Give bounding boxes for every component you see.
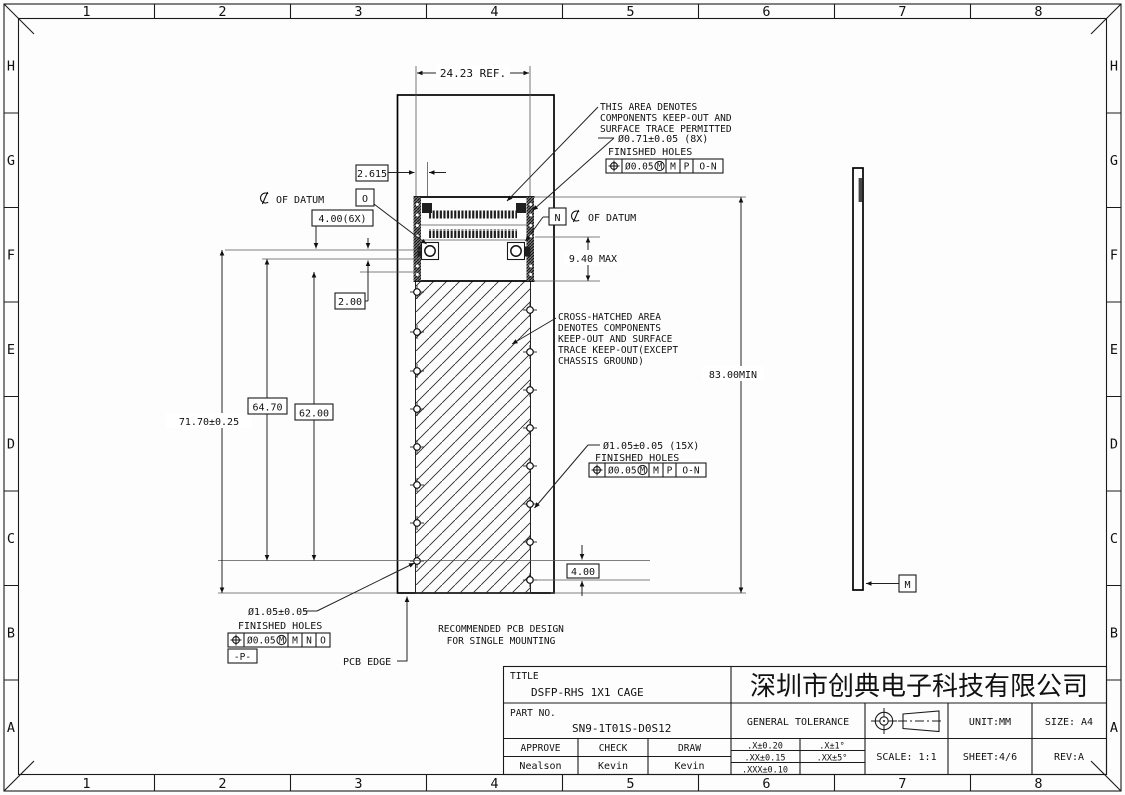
part-number: SN9-1T01S-D0S12 bbox=[572, 722, 671, 735]
fcf-datum: M bbox=[653, 466, 659, 477]
pin-row-1 bbox=[429, 210, 517, 219]
note-line: CROSS-HATCHED AREA bbox=[558, 312, 661, 323]
fcf-datum: M bbox=[670, 162, 676, 173]
col-label: 8 bbox=[1034, 4, 1042, 20]
tolerance-value: .XX±0.15 bbox=[745, 754, 786, 764]
fcf-datum: M bbox=[292, 636, 298, 647]
row-label: G bbox=[7, 153, 15, 169]
checker-name: Kevin bbox=[598, 761, 628, 772]
part-no-label: PART NO. bbox=[510, 708, 556, 719]
col-label: 4 bbox=[490, 4, 498, 20]
row-label: G bbox=[1110, 153, 1118, 169]
centerline-icon bbox=[260, 192, 268, 204]
datum-hole-n bbox=[511, 246, 521, 256]
hole-spec: Ø1.05±0.05 (15X) bbox=[603, 440, 699, 452]
crosshatch-keepout-area bbox=[416, 281, 531, 593]
datum-n-callout: N OF DATUM bbox=[526, 208, 637, 241]
dim-940: 9.40 MAX bbox=[564, 237, 622, 281]
row-label: F bbox=[1110, 248, 1118, 264]
row-label: D bbox=[7, 437, 15, 453]
pcb-top-view bbox=[398, 95, 555, 593]
col-label: 6 bbox=[762, 776, 770, 792]
general-tolerance-label: GENERAL TOLERANCE bbox=[747, 717, 849, 728]
dim-2615: 2.615 bbox=[356, 165, 446, 181]
datum-letter: N bbox=[554, 213, 560, 224]
note-line: TRACE KEEP-OUT(EXCEPT bbox=[558, 345, 678, 356]
dim-text: 4.00 bbox=[571, 567, 595, 578]
col-label: 5 bbox=[626, 776, 634, 792]
angle-tolerance-value: .X±1° bbox=[819, 742, 845, 752]
scale-value: SCALE: 1:1 bbox=[876, 752, 936, 763]
col-label: 3 bbox=[354, 4, 362, 20]
dim-text: 83.00MIN bbox=[709, 370, 757, 381]
fcf-datum: P bbox=[684, 162, 690, 173]
feature-control-frame: Ø0.05 M M P O-N bbox=[589, 463, 706, 477]
holes15-callout: Ø1.05±0.05 (15X) FINISHED HOLES Ø0.05 M … bbox=[535, 440, 707, 508]
title-block: TITLE DSFP-RHS 1X1 CAGE PART NO. SN9-1T0… bbox=[504, 667, 1107, 776]
fcf-datum: O-N bbox=[682, 466, 699, 477]
datum-letter: O bbox=[362, 194, 368, 205]
dim-8300: 83.00MIN bbox=[702, 197, 764, 593]
fcf-datum: O-N bbox=[699, 162, 716, 173]
row-label: D bbox=[1110, 437, 1118, 453]
fcf-datum: P bbox=[667, 466, 673, 477]
col-label: 4 bbox=[490, 776, 498, 792]
side-view-outline bbox=[853, 168, 863, 590]
col-label: 2 bbox=[218, 4, 226, 20]
datum-p-callout: Ø1.05±0.05 FINISHED HOLES Ø0.05 M M N O … bbox=[228, 563, 415, 663]
dim-6200: 62.00 bbox=[295, 272, 333, 561]
draw-label: DRAW bbox=[678, 743, 701, 754]
row-label: E bbox=[1110, 342, 1118, 358]
dim-text: 71.70±0.25 bbox=[179, 417, 239, 428]
dim-text: 4.00(6X) bbox=[318, 214, 366, 225]
datum-flag: -P- bbox=[234, 652, 251, 663]
check-label: CHECK bbox=[599, 743, 628, 754]
pin-row-2 bbox=[429, 229, 517, 238]
dim-text: 64.70 bbox=[252, 403, 282, 414]
pcb-side-view: M bbox=[853, 168, 916, 592]
note-line: KEEP-OUT AND SURFACE bbox=[558, 334, 673, 345]
row-label: H bbox=[7, 59, 15, 75]
dim-text: 62.00 bbox=[299, 409, 329, 420]
dim-400: 4.00 bbox=[567, 545, 599, 596]
angle-tolerance-value: .XX±5° bbox=[817, 754, 848, 764]
pcb-edge-label: PCB EDGE bbox=[343, 657, 391, 668]
tolerance-value: .XXX±0.10 bbox=[742, 766, 788, 776]
row-label: B bbox=[7, 626, 15, 642]
tolerance-value: .X±0.20 bbox=[747, 742, 783, 752]
side-view-pad bbox=[859, 178, 863, 202]
row-label: B bbox=[1110, 626, 1118, 642]
fcf-datum: O bbox=[320, 636, 326, 647]
corner-pad bbox=[516, 203, 526, 213]
approve-label: APPROVE bbox=[520, 743, 560, 754]
fcf-tolerance: Ø0.05 bbox=[625, 162, 654, 173]
dim-text: 24.23 REF. bbox=[440, 67, 506, 80]
dim-7170: 71.70±0.25 bbox=[166, 250, 252, 593]
size-value: SIZE: A4 bbox=[1045, 717, 1093, 728]
row-label: A bbox=[7, 720, 15, 736]
dim-400-6x: 4.00(6X) bbox=[312, 210, 373, 249]
sheet-value: SHEET:4/6 bbox=[963, 752, 1017, 763]
dim-text: 2.615 bbox=[357, 169, 387, 180]
drafter-name: Kevin bbox=[674, 761, 704, 772]
col-label: 1 bbox=[82, 776, 90, 792]
approver-name: Nealson bbox=[519, 761, 561, 772]
note-line: THIS AREA DENOTES bbox=[600, 102, 698, 113]
dim-6470: 64.70 bbox=[248, 259, 287, 561]
col-label: 7 bbox=[898, 776, 906, 792]
fcf-datum: N bbox=[306, 636, 312, 647]
note-line: RECOMMENDED PCB DESIGN bbox=[438, 624, 564, 635]
finished-holes-label: FINISHED HOLES bbox=[238, 621, 322, 632]
dim-text: 9.40 MAX bbox=[569, 254, 617, 265]
company-name: 深圳市创典电子科技有限公司 bbox=[750, 672, 1088, 702]
finished-holes-label: FINISHED HOLES bbox=[595, 453, 679, 464]
fcf-tolerance: Ø0.05 bbox=[608, 466, 637, 477]
col-label: 6 bbox=[762, 4, 770, 20]
rev-value: REV:A bbox=[1054, 752, 1084, 763]
crosshatch-note: CROSS-HATCHED AREA DENOTES COMPONENTS KE… bbox=[512, 312, 678, 367]
drawing-title: DSFP-RHS 1X1 CAGE bbox=[531, 686, 644, 699]
dim-text: 2.00 bbox=[338, 297, 362, 308]
feature-control-frame: Ø0.05 M M P O-N bbox=[606, 159, 723, 173]
col-label: 1 bbox=[82, 4, 90, 20]
note-line: CHASSIS GROUND) bbox=[558, 356, 644, 367]
hole-spec: Ø0.71±0.05 (8X) bbox=[618, 133, 708, 145]
finished-holes-label: FINISHED HOLES bbox=[608, 147, 692, 158]
row-label: F bbox=[7, 248, 15, 264]
hole-spec: Ø1.05±0.05 bbox=[248, 606, 308, 618]
col-label: 5 bbox=[626, 4, 634, 20]
note-line: DENOTES COMPONENTS bbox=[558, 323, 661, 334]
unit-value: UNIT:MM bbox=[969, 717, 1011, 728]
col-label: 2 bbox=[218, 776, 226, 792]
note-line: COMPONENTS KEEP-OUT AND bbox=[600, 113, 732, 124]
centerline-icon bbox=[571, 210, 579, 222]
feature-control-frame: Ø0.05 M M N O bbox=[228, 633, 330, 647]
pcb-edge-callout: PCB EDGE bbox=[343, 597, 407, 669]
col-label: 3 bbox=[354, 776, 362, 792]
dim-200: 2.00 bbox=[335, 238, 368, 309]
row-label: A bbox=[1110, 720, 1118, 736]
note-line: FOR SINGLE MOUNTING bbox=[447, 636, 556, 647]
engineering-drawing-sheet: 1 2 3 4 5 6 7 8 1 2 3 4 5 6 7 8 H G F E … bbox=[0, 0, 1125, 795]
projection-symbol-icon bbox=[871, 708, 944, 734]
datum-hole-o bbox=[425, 246, 435, 256]
col-label: 8 bbox=[1034, 776, 1042, 792]
row-label: C bbox=[1110, 531, 1118, 547]
datum-label: OF DATUM bbox=[588, 213, 636, 224]
row-label: H bbox=[1110, 59, 1118, 75]
datum-label: OF DATUM bbox=[276, 195, 324, 206]
title-label: TITLE bbox=[510, 671, 539, 682]
fcf-tolerance: Ø0.05 bbox=[247, 636, 276, 647]
dim-width-ref: 24.23 REF. bbox=[417, 65, 529, 80]
fcf-modifier: M bbox=[279, 636, 284, 646]
recommend-note: RECOMMENDED PCB DESIGN FOR SINGLE MOUNTI… bbox=[438, 624, 564, 647]
fcf-modifier: M bbox=[657, 162, 662, 172]
row-label: E bbox=[7, 342, 15, 358]
connector-footprint bbox=[414, 197, 535, 281]
fcf-modifier: M bbox=[640, 466, 645, 476]
col-label: 7 bbox=[898, 4, 906, 20]
row-label: C bbox=[7, 531, 15, 547]
datum-letter: M bbox=[904, 580, 910, 591]
